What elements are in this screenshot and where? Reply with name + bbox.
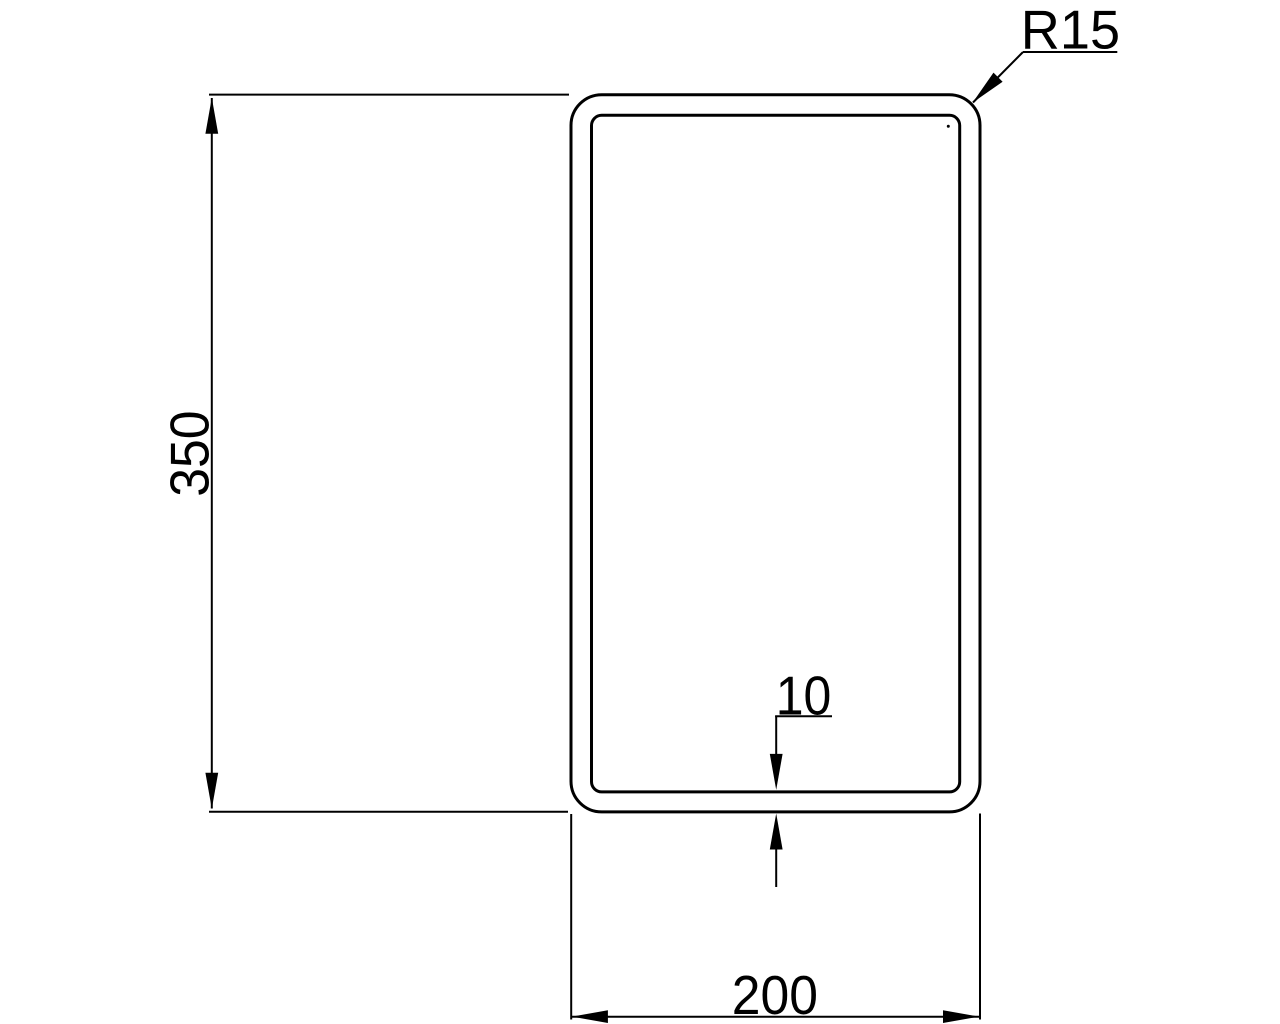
svg-text:10: 10 [776, 665, 832, 726]
svg-text:350: 350 [159, 411, 220, 497]
svg-text:R15: R15 [1021, 0, 1120, 61]
svg-text:200: 200 [732, 965, 818, 1024]
